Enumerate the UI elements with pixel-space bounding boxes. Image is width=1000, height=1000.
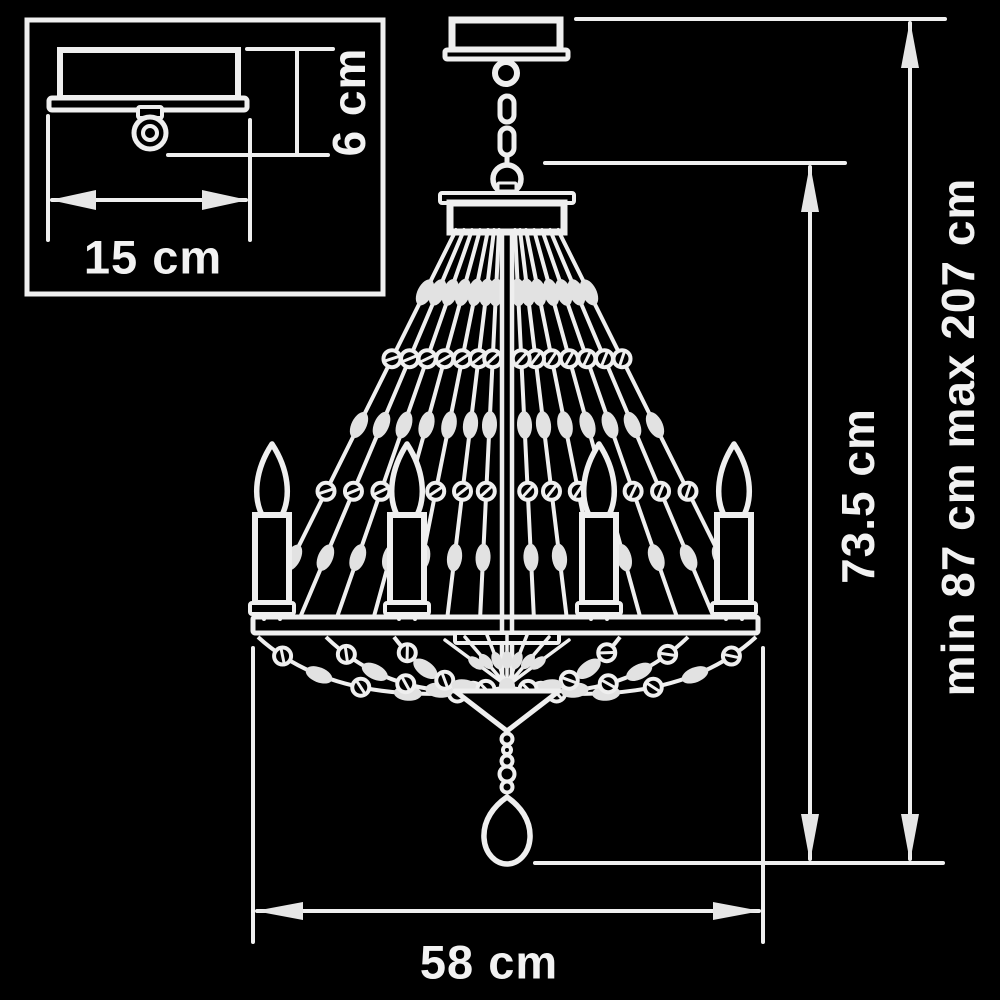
fixture-height-label: 73.5 cm: [831, 408, 885, 584]
dimension-diagram: 15 cm 6 cm 73.5 cm min 87 cm max 207 cm …: [0, 0, 1000, 1000]
canopy-width-label: 15 cm: [84, 230, 222, 285]
overall-height-label: min 87 cm max 207 cm: [931, 178, 985, 697]
canopy-height-label: 6 cm: [322, 48, 376, 157]
fixture-width-label: 58 cm: [420, 935, 558, 990]
